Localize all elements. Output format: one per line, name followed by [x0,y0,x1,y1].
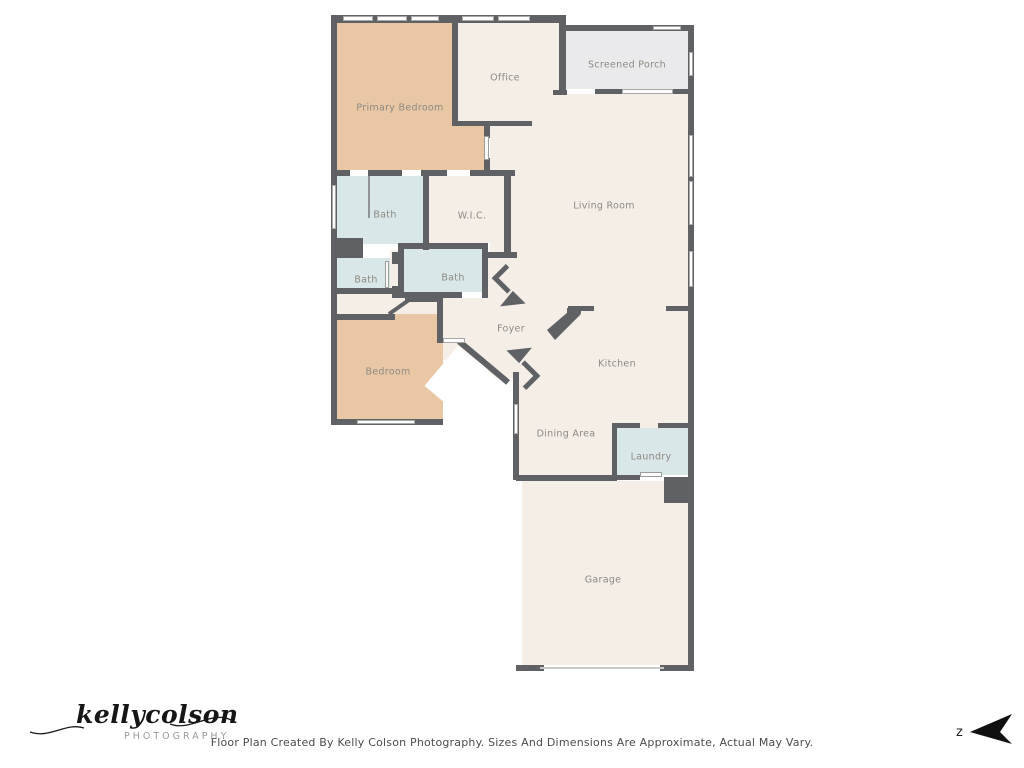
window [689,251,693,287]
wall [437,296,443,343]
room-label-bath-hall: Bath [354,275,377,286]
wall [331,288,394,294]
wall [658,423,688,428]
door [385,261,389,288]
garage-door-line [540,667,664,669]
wall [595,89,622,94]
room-label-bedroom: Bedroom [365,367,410,378]
window [411,16,439,21]
floor-plan-page: Primary Bedroom Office Screened Porch Li… [0,0,1024,768]
room-label-laundry: Laundry [631,452,672,463]
door [640,472,662,477]
structure-block [331,238,363,258]
room-label-screened-porch: Screened Porch [588,60,666,71]
wall [392,252,398,264]
window [653,26,681,30]
room-label-foyer: Foyer [497,324,525,335]
window [357,420,415,424]
structure-block [664,477,694,503]
window [343,16,373,21]
window [462,16,494,21]
room-garage [522,481,688,665]
room-label-wic: W.I.C. [458,211,487,222]
wall [368,170,402,176]
wall [553,90,567,95]
shower-divider [368,176,370,218]
window [689,135,693,177]
wall [398,243,404,298]
wall [504,170,511,258]
window [514,404,518,434]
door [484,136,489,160]
wall [516,475,617,481]
wall [612,475,640,480]
room-primary-bedroom-ext [452,126,484,170]
room-label-primary-bedroom: Primary Bedroom [356,103,443,114]
window [689,181,693,225]
room-label-dining-area: Dining Area [537,429,596,440]
compass: z [952,708,1018,750]
room-bath-middle [404,249,482,292]
wall [673,89,688,94]
north-arrow-icon [968,712,1014,746]
window [377,16,407,21]
wall [331,170,350,176]
logo-script-text: kellycolson [76,700,239,729]
wall [612,423,617,480]
door-swing-icon [545,306,581,342]
room-label-living-room: Living Room [573,201,635,212]
room-label-bath-middle: Bath [441,273,464,284]
wall [559,15,566,95]
room-primary-bedroom [337,23,452,170]
window [498,16,530,21]
room-label-office: Office [490,73,520,84]
wall [688,480,694,671]
room-label-kitchen: Kitchen [598,359,636,370]
room-label-bath-primary: Bath [373,210,396,221]
wall [660,665,694,671]
wall [452,121,532,126]
compass-letter: z [956,725,963,740]
window [443,338,465,343]
wall [423,170,429,250]
wall [337,314,395,320]
disclaimer-caption: Floor Plan Created By Kelly Colson Photo… [0,736,1024,749]
room-wic [429,176,504,243]
window [332,185,336,229]
window [689,52,693,76]
wall [666,306,694,311]
window [622,89,673,94]
wall [452,15,458,124]
room-label-garage: Garage [585,575,622,586]
wall [398,243,488,249]
